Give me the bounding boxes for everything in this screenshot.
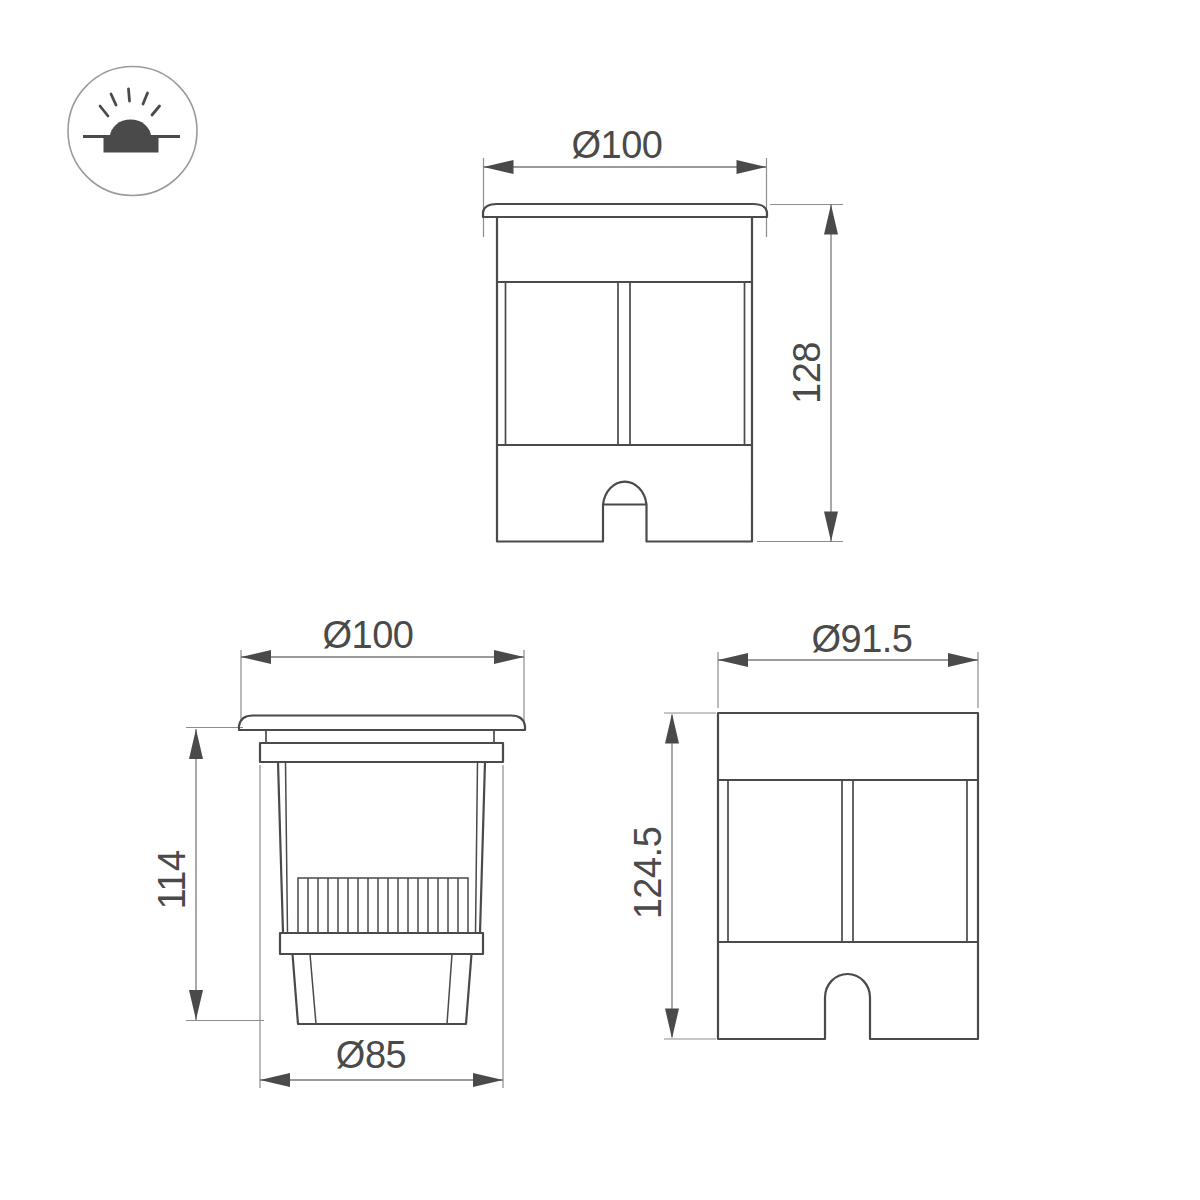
arrowhead-left (260, 1073, 290, 1087)
front-lens-dividers (506, 282, 745, 445)
arrowhead-top (665, 714, 679, 744)
extension-lines (484, 158, 767, 237)
inground-recessed-light-icon (68, 67, 197, 196)
front-height-label: 128 (786, 342, 828, 404)
side-base-bucket (293, 954, 472, 1024)
side-view-height-dimension: 114 (151, 728, 264, 1021)
side-view-diameter-dimension: Ø100 (241, 614, 524, 722)
side-view: Ø100 114 Ø85 (151, 614, 525, 1088)
arrowhead-bottom (665, 1009, 679, 1039)
front-section-lines (497, 282, 752, 445)
arrowhead-left (484, 160, 514, 174)
side-mounting-ring (260, 743, 503, 762)
side-heatsink (298, 878, 468, 933)
front-body-outline (497, 217, 752, 542)
front-view: Ø100 128 (483, 124, 843, 542)
housing-body-outline (718, 713, 978, 1039)
side-heatsink-block (298, 878, 468, 933)
extension-lines (186, 728, 264, 1021)
housing-view-diameter-dimension: Ø91.5 (718, 618, 978, 708)
arrowhead-top (189, 729, 203, 759)
side-base-diameter-label: Ø85 (336, 1034, 406, 1076)
drawing-sheet: Ø100 128 Ø100 (0, 0, 1200, 1200)
side-view-base-diameter-dimension: Ø85 (260, 765, 503, 1088)
arrowhead-left (241, 650, 271, 664)
arrowhead-bottom (189, 990, 203, 1020)
side-height-label: 114 (151, 850, 193, 909)
housing-section-lines (718, 780, 978, 942)
housing-diameter-label: Ø91.5 (811, 618, 912, 660)
icon-recessed-body (104, 138, 159, 153)
housing-height-label: 124.5 (627, 827, 669, 920)
housing-view-height-dimension: 124.5 (627, 713, 716, 1039)
arrowhead-right (473, 1073, 503, 1087)
side-heatsink-fins (308, 878, 458, 933)
side-neck (266, 730, 494, 743)
side-base-inner-walls (310, 954, 452, 1024)
arrowhead-top (824, 205, 838, 235)
arrowhead-left (718, 653, 748, 667)
side-trim-flange (239, 716, 525, 731)
technical-drawing-canvas: Ø100 128 Ø100 (0, 0, 1200, 1200)
housing-view: Ø91.5 124.5 (627, 618, 978, 1039)
side-shelf-plate (280, 933, 483, 954)
side-diameter-label: Ø100 (323, 614, 414, 656)
front-trim-flange (483, 204, 767, 217)
extension-lines (241, 650, 524, 722)
arrowhead-bottom (824, 512, 838, 542)
arrowhead-right (948, 653, 978, 667)
housing-lens-dividers (728, 780, 967, 942)
side-body-walls (278, 762, 485, 933)
front-view-diameter-dimension: Ø100 (484, 124, 767, 237)
front-diameter-label: Ø100 (572, 124, 663, 166)
arrowhead-right (737, 160, 767, 174)
arrowhead-right (494, 650, 524, 664)
front-view-height-dimension: 128 (757, 205, 843, 542)
